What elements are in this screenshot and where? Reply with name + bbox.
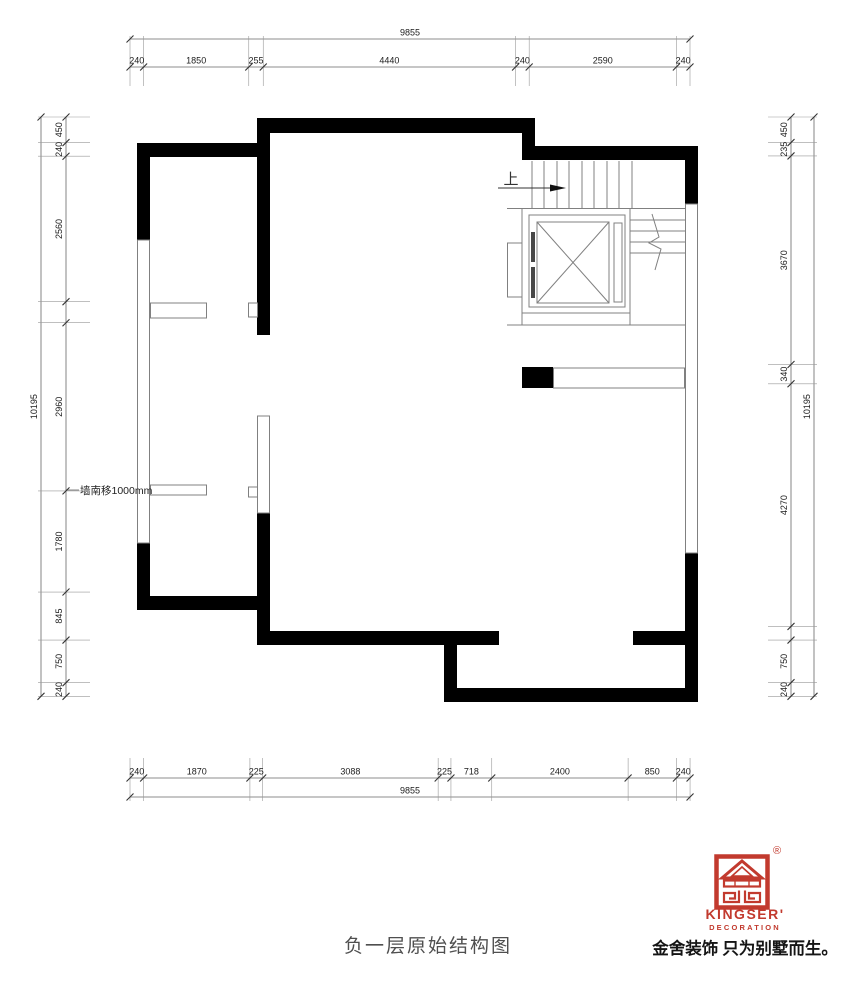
dim-label: 225 <box>437 767 452 777</box>
wall-bottom-left-room <box>137 596 270 610</box>
dim-label: 240 <box>676 56 691 66</box>
dim-label: 1870 <box>187 767 207 777</box>
dim-label: 1780 <box>54 531 64 551</box>
elevator-doors <box>531 232 535 298</box>
dim-label: 240 <box>129 767 144 777</box>
brand-subtitle: DECORATION <box>645 923 845 932</box>
thin-wall-340 <box>554 368 685 388</box>
dim-label: 750 <box>54 654 64 669</box>
floor-plan-drawing: 上 墙南移1000mm 2401850255444024025902409855… <box>0 0 856 1000</box>
wall-middle-lower <box>257 513 270 645</box>
dim-label: 850 <box>645 767 660 777</box>
wall-top-right <box>535 146 698 160</box>
dim-label: 2560 <box>54 219 64 239</box>
dim-label: 450 <box>54 122 64 137</box>
stair-up-label: 上 <box>503 171 518 188</box>
dim-label: 3088 <box>340 767 360 777</box>
dim-label: 450 <box>779 122 789 137</box>
registered-mark: ® <box>773 845 781 857</box>
dim-label: 340 <box>779 367 789 382</box>
elevator-shaft <box>507 209 685 326</box>
brand-tagline: 金舍装饰 只为别墅而生。 <box>645 935 845 959</box>
wall-right-lower <box>685 553 698 702</box>
dim-label: 10195 <box>29 394 39 419</box>
dim-label: 4440 <box>379 56 399 66</box>
dim-label: 9855 <box>400 786 420 796</box>
structural-walls <box>137 118 698 702</box>
wall-left-upper <box>137 143 150 240</box>
brand-name: KINGSER' <box>645 906 845 922</box>
dim-label: 10195 <box>802 394 812 419</box>
elevator-door-panel-1 <box>531 232 535 262</box>
wall-right-upper <box>685 146 698 204</box>
wall-top-step <box>522 118 535 160</box>
dim-label: 845 <box>54 609 64 624</box>
wall-shift-note: 墙南移1000mm <box>80 484 153 497</box>
dim-label: 750 <box>779 654 789 669</box>
wall-bottom-outer <box>444 688 698 702</box>
floor-plan-page: 上 墙南移1000mm 2401850255444024025902409855… <box>0 0 856 1000</box>
thin-wall-middle <box>258 416 270 513</box>
shaft-door-recess <box>508 243 523 297</box>
dim-label: 3670 <box>779 250 789 270</box>
jamb-upper <box>249 303 258 317</box>
logo-key-right <box>745 891 760 903</box>
elevator-door-panel-2 <box>531 267 535 298</box>
dim-label: 240 <box>779 682 789 697</box>
dim-label: 240 <box>54 682 64 697</box>
dim-label: 2590 <box>593 56 613 66</box>
jamb-lower <box>249 487 258 497</box>
dim-label: 240 <box>515 56 530 66</box>
dim-label: 225 <box>249 767 264 777</box>
wall-bottom-middle <box>257 631 499 645</box>
logo-key-left <box>724 891 739 903</box>
dim-label: 2400 <box>550 767 570 777</box>
thin-stub-lower <box>151 485 207 495</box>
wall-top-middle <box>257 118 535 133</box>
logo-lintel <box>724 881 760 887</box>
wall-top-left-room <box>137 143 257 157</box>
column-middle-right <box>522 367 553 388</box>
stair-direction-arrow <box>550 185 566 192</box>
wall-shift-annotation: 墙南移1000mm <box>66 484 153 497</box>
dim-label: 240 <box>54 142 64 157</box>
dim-label: 235 <box>779 142 789 157</box>
counterweight <box>614 223 622 302</box>
dim-label: 1850 <box>186 56 206 66</box>
dim-label: 255 <box>248 56 263 66</box>
thin-wall-left <box>138 240 150 543</box>
thin-stub-upper <box>151 303 207 318</box>
dim-label: 718 <box>464 767 479 777</box>
dim-label: 240 <box>129 56 144 66</box>
kingser-logo-mark <box>714 854 770 910</box>
dim-label: 240 <box>676 767 691 777</box>
thin-wall-right <box>686 204 698 553</box>
dim-label: 4270 <box>779 495 789 515</box>
wall-middle-upper <box>257 118 270 335</box>
drawing-title: 负一层原始结构图 <box>290 931 566 958</box>
wall-bottom-right-stub <box>633 631 685 645</box>
dim-label: 2960 <box>54 397 64 417</box>
dim-label: 9855 <box>400 28 420 38</box>
